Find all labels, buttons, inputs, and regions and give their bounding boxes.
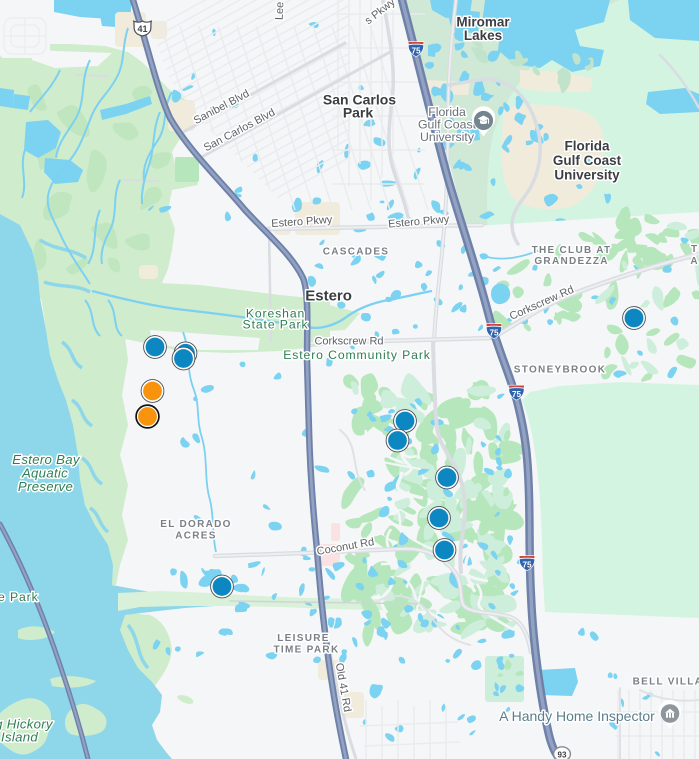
svg-text:ACRES: ACRES — [175, 531, 217, 542]
svg-text:Corkscrew Rd: Corkscrew Rd — [314, 336, 383, 348]
svg-text:GRANDEZZA: GRANDEZZA — [534, 256, 608, 267]
svg-text:Preserve: Preserve — [18, 479, 73, 494]
svg-text:Park: Park — [343, 105, 374, 121]
svg-text:BELL VILLA: BELL VILLA — [633, 677, 699, 688]
svg-text:University: University — [554, 167, 620, 182]
svg-text:75: 75 — [522, 561, 532, 570]
svg-text:EL DORADO: EL DORADO — [160, 519, 232, 530]
svg-text:Gulf Coast: Gulf Coast — [553, 153, 622, 168]
svg-text:LEISURE: LEISURE — [277, 633, 329, 644]
svg-text:Estero: Estero — [305, 288, 352, 305]
svg-text:THE CLUB AT: THE CLUB AT — [532, 245, 612, 256]
svg-text:CASCADES: CASCADES — [323, 247, 390, 258]
svg-text:University: University — [420, 130, 475, 144]
svg-text:41: 41 — [137, 24, 147, 34]
svg-text:A: A — [690, 256, 697, 267]
svg-text:STONEYBROOK: STONEYBROOK — [514, 365, 606, 376]
svg-text:75: 75 — [489, 329, 499, 338]
svg-text:Estero Community Park: Estero Community Park — [283, 348, 431, 362]
svg-text:A Handy Home Inspector: A Handy Home Inspector — [499, 708, 655, 724]
svg-text:TIME PARK: TIME PARK — [274, 645, 340, 656]
svg-text:Florida: Florida — [564, 139, 609, 154]
svg-text:e Park: e Park — [0, 590, 39, 604]
svg-text:75: 75 — [411, 47, 421, 56]
svg-text:T: T — [691, 244, 697, 255]
svg-text:Lee: Lee — [274, 2, 287, 21]
svg-text:Lakes: Lakes — [464, 28, 502, 43]
svg-text:93: 93 — [558, 750, 567, 759]
svg-text:State Park: State Park — [243, 318, 309, 332]
svg-text:75: 75 — [512, 390, 522, 399]
svg-text:Island: Island — [1, 730, 38, 745]
